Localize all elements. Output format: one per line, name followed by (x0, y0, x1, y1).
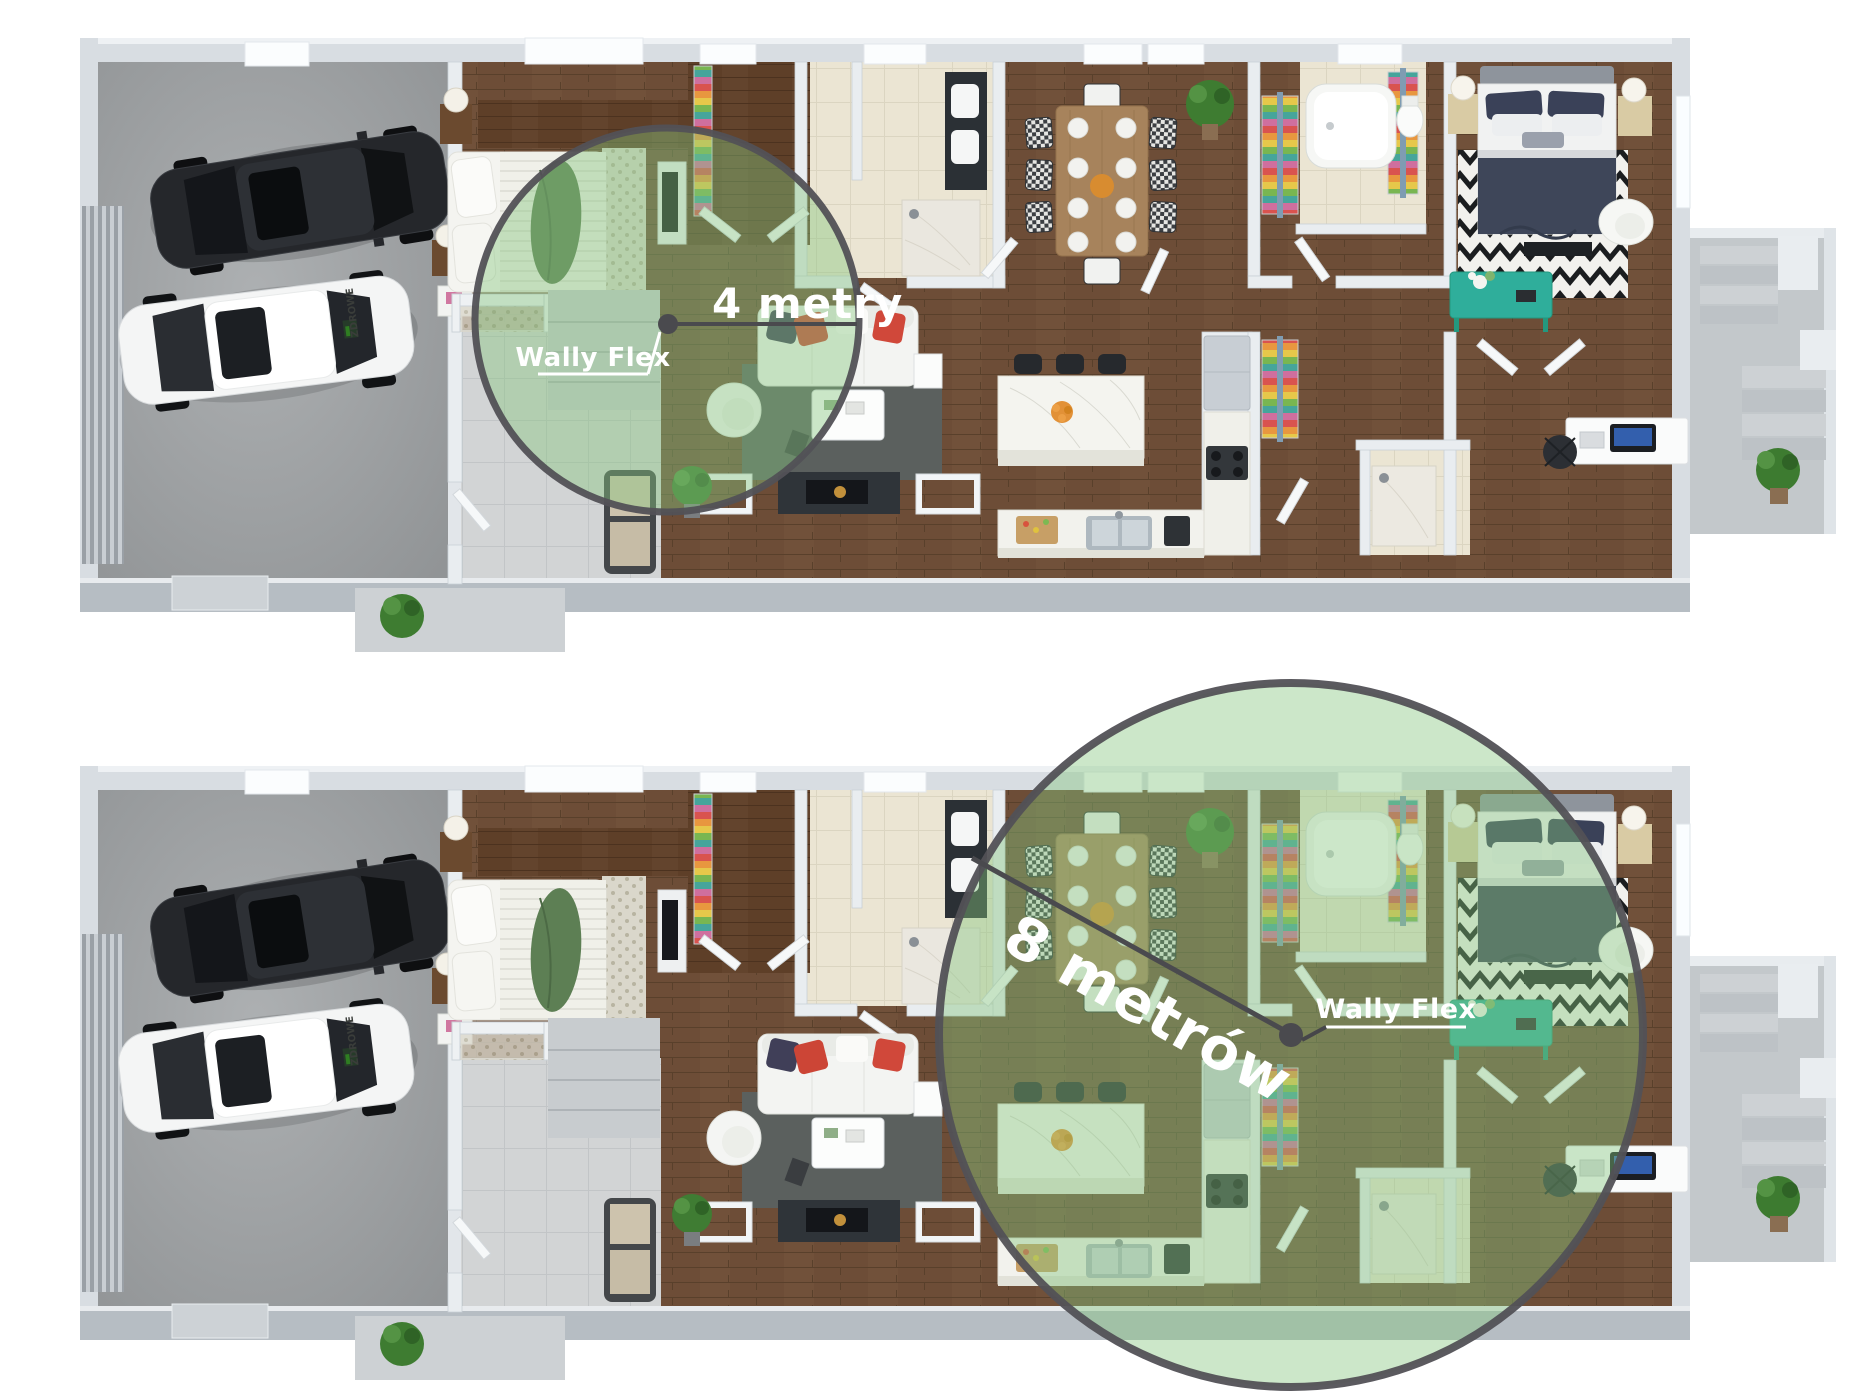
range-label-top: 4 metry (712, 279, 903, 328)
figure-svg: ZDROWE (0, 0, 1849, 1397)
coverage-comparison-figure: ZDROWE (0, 0, 1849, 1397)
device-dot (1279, 1023, 1303, 1047)
device-label-bottom: Wally Flex (1316, 994, 1477, 1025)
floorplan-bottom: 8 metrów Wally Flex (80, 683, 1836, 1387)
coverage-overlay-bottom: 8 metrów Wally Flex (939, 683, 1643, 1387)
device-label-top: Wally Flex (515, 343, 670, 373)
device-dot (658, 314, 678, 334)
floorplan-top: 4 metry Wally Flex (80, 38, 1836, 652)
